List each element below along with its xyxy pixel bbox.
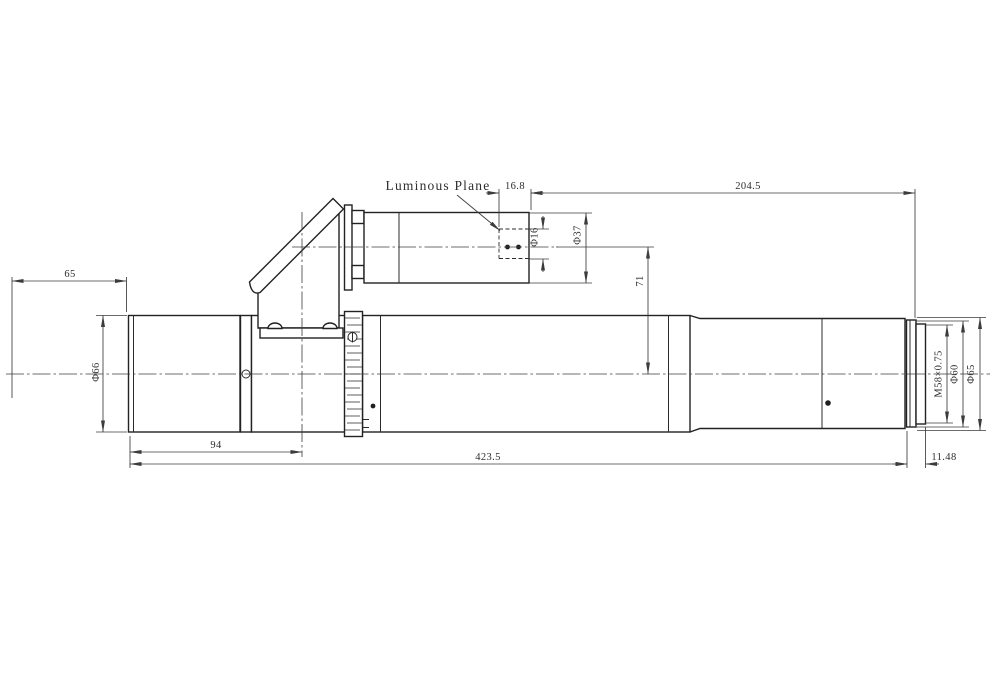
dim-mount-thread: M58×0.75 (934, 350, 945, 397)
dim-front-to-prism-axis: 94 (210, 440, 222, 451)
dim-rear-barrel-dia: Φ65 (966, 364, 977, 383)
dim-rear-section-length: 204.5 (735, 181, 761, 192)
dim-image-plane-inset: 16.8 (505, 181, 525, 192)
lens-assembly-drawing: 65 Φ66 16.8 204.5 Φ16 Φ37 71 94 423 (0, 0, 1000, 674)
dim-axis-offset: 71 (635, 275, 646, 286)
eyepiece-tube (345, 205, 530, 290)
technical-drawing-sheet: 65 Φ66 16.8 204.5 Φ16 Φ37 71 94 423 (0, 0, 1000, 674)
dim-front-standoff: 65 (64, 269, 75, 280)
dim-eyepiece-tube-dia: Φ37 (573, 225, 584, 244)
dim-thread-shoulder-dia: Φ60 (950, 364, 961, 383)
flange-screw (268, 323, 282, 328)
dim-image-circle-dia: Φ16 (530, 227, 541, 246)
clamp-tab (352, 211, 364, 224)
dim-front-barrel-dia: Φ66 (91, 362, 102, 381)
dim-thread-length: 11.48 (931, 452, 956, 463)
prism-housing (250, 199, 344, 339)
mount-flange (260, 328, 343, 338)
index-dot (371, 404, 376, 409)
rear-set-screw (825, 400, 831, 406)
rear-ring (907, 320, 917, 427)
luminous-plane-label: Luminous Plane (386, 178, 491, 193)
flange-screw (323, 323, 337, 328)
dim-body-length: 423.5 (475, 452, 501, 463)
clamp-tab (352, 266, 364, 279)
